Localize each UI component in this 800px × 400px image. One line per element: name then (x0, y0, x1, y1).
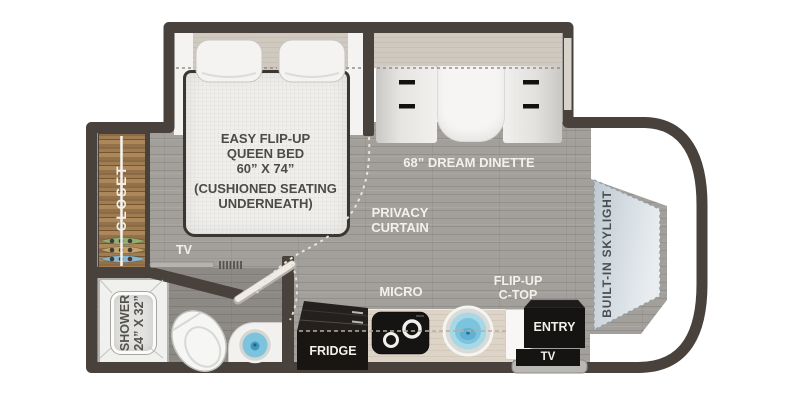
bedroom-tv-icon (150, 262, 214, 268)
cooktop-icon (372, 312, 429, 354)
shower-label: SHOWER 24” X 32” (119, 283, 149, 363)
bedroom-tv-label: TV (168, 243, 200, 258)
closet-label: CLOSET (115, 138, 131, 258)
fridge-icon (297, 301, 368, 370)
dinette-window (564, 38, 572, 110)
rv-floorplan: EASY FLIP-UP QUEEN BED 60” X 74” (CUSHIO… (0, 0, 800, 400)
bathroom-sink-icon (238, 328, 272, 362)
fridge-label: FRIDGE (303, 344, 363, 359)
privacy-curtain-label: PRIVACY CURTAIN (350, 206, 450, 235)
dinette-armrests (399, 80, 539, 109)
bed-note-label: (CUSHIONED SEATING UNDERNEATH) (185, 181, 346, 211)
entry-tv-label: TV (516, 350, 580, 365)
entry-label: ENTRY (524, 320, 585, 335)
fliptop-label: FLIP-UP C-TOP (488, 275, 548, 302)
skylight-label: BUILT-IN SKYLIGHT (600, 179, 616, 329)
slatted-vent-icon (220, 261, 241, 269)
pillow-icons (196, 40, 345, 82)
dinette-label: 68” DREAM DINETTE (389, 156, 549, 171)
bed-dinette-divider-wall (363, 22, 374, 136)
bed-size-label: EASY FLIP-UP QUEEN BED 60” X 74” (185, 131, 346, 176)
micro-label: MICRO (371, 285, 431, 300)
